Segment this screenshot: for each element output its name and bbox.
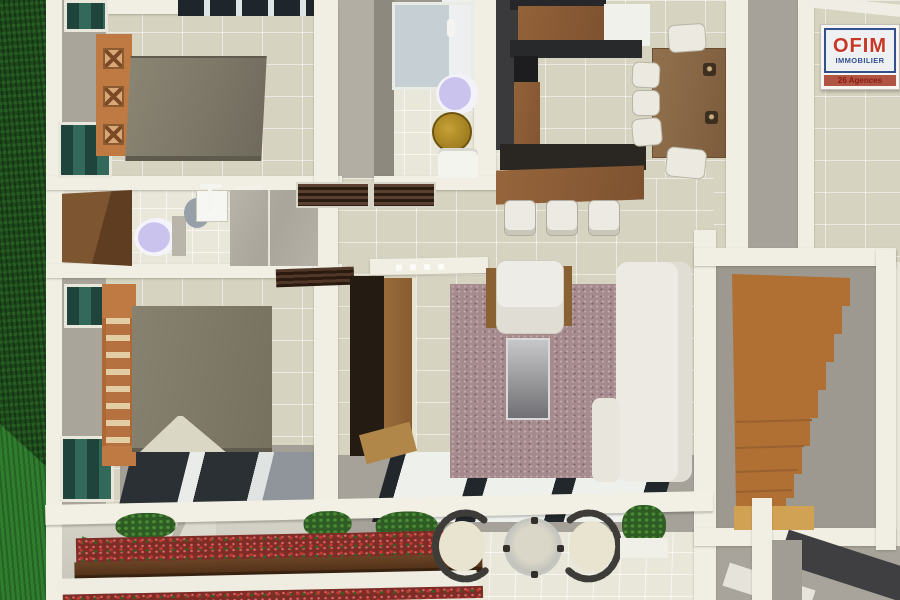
headboard-x-slat bbox=[103, 124, 124, 145]
kitchen-right-wall bbox=[726, 0, 748, 250]
toilet-lid bbox=[136, 220, 172, 254]
door-bathroom-2 bbox=[62, 190, 132, 266]
table-joint bbox=[503, 545, 510, 552]
terrace-post-shadow bbox=[772, 540, 802, 600]
louver-panel bbox=[296, 182, 370, 208]
toilet-tank bbox=[172, 216, 186, 256]
shelf-jar bbox=[438, 264, 444, 270]
sofa-main bbox=[616, 262, 692, 482]
dining-chair bbox=[665, 146, 708, 180]
dining-chair bbox=[631, 117, 663, 148]
right-gray-zone bbox=[748, 0, 798, 250]
shelf-jar bbox=[396, 264, 402, 270]
bar-stool bbox=[504, 200, 536, 236]
lawn-strip bbox=[0, 0, 50, 600]
terrace-post bbox=[752, 498, 772, 600]
patio-table bbox=[504, 518, 562, 576]
table-setting bbox=[705, 111, 718, 124]
kitchen-counter-top bbox=[518, 6, 606, 44]
toilet-lid bbox=[439, 77, 471, 110]
gold-stool bbox=[432, 112, 472, 152]
shelf-jar bbox=[410, 264, 416, 270]
ofim-logo-subtitle: IMMOBILIER bbox=[836, 56, 885, 65]
sink-bathroom-1 bbox=[438, 148, 478, 178]
shower-head bbox=[447, 19, 455, 37]
bar-stool bbox=[588, 200, 620, 236]
glass-coffee-table bbox=[506, 338, 550, 420]
table-joint bbox=[531, 571, 538, 578]
kitchen-appliance bbox=[514, 56, 538, 82]
wall-top-band bbox=[108, 0, 180, 14]
patio-chair-left bbox=[426, 506, 498, 596]
wooden-staircase bbox=[712, 262, 894, 548]
closet-zone bbox=[336, 0, 376, 178]
ofim-logo-title: OFIM bbox=[833, 36, 887, 56]
ofim-logo: OFIM IMMOBILIER 26 Agences bbox=[820, 24, 900, 90]
ofim-logo-tagline: 26 Agences bbox=[824, 75, 896, 86]
lawn-light-patch bbox=[0, 400, 50, 600]
sink-mirror bbox=[196, 190, 228, 222]
bed-bedroom-1 bbox=[125, 56, 267, 161]
floorplan-3d-render: OFIM IMMOBILIER 26 Agences bbox=[0, 0, 900, 600]
breakfast-bar-front bbox=[496, 165, 644, 204]
dining-chair bbox=[632, 90, 660, 116]
table-setting bbox=[703, 63, 716, 76]
louver-panel bbox=[372, 182, 436, 208]
dining-chair bbox=[667, 23, 707, 54]
toilet-bathroom-1 bbox=[436, 74, 478, 114]
headboard2-ladder bbox=[102, 318, 134, 448]
headboard-x-slat bbox=[103, 86, 124, 107]
headboard2-bottom bbox=[102, 446, 136, 466]
right-cream-band bbox=[798, 0, 814, 250]
bedroom1-window-top bbox=[64, 0, 108, 32]
patio-chair-right bbox=[556, 506, 628, 596]
shower-glass-line bbox=[268, 190, 270, 266]
plant-pot bbox=[620, 538, 668, 558]
headboard2-top bbox=[102, 284, 136, 318]
half-wall-shelf bbox=[370, 257, 488, 275]
bed-bedroom-2 bbox=[132, 306, 272, 452]
wardrobe-slat-top bbox=[276, 267, 355, 288]
sofa-chaise bbox=[592, 398, 620, 482]
shelf-jar bbox=[424, 264, 430, 270]
table-joint bbox=[531, 517, 538, 524]
sink-faucet-stem bbox=[208, 186, 212, 212]
dining-chair bbox=[631, 61, 660, 88]
bedroom1-skylight bbox=[178, 0, 314, 16]
dining-table bbox=[652, 48, 726, 158]
headboard-x-slat bbox=[103, 48, 124, 69]
bar-stool bbox=[546, 200, 578, 236]
ofim-logo-frame: OFIM IMMOBILIER bbox=[824, 28, 896, 73]
bathroom1-left-wall bbox=[374, 0, 394, 178]
hanging-foliage bbox=[115, 512, 176, 539]
armchair-cushion bbox=[496, 260, 564, 334]
